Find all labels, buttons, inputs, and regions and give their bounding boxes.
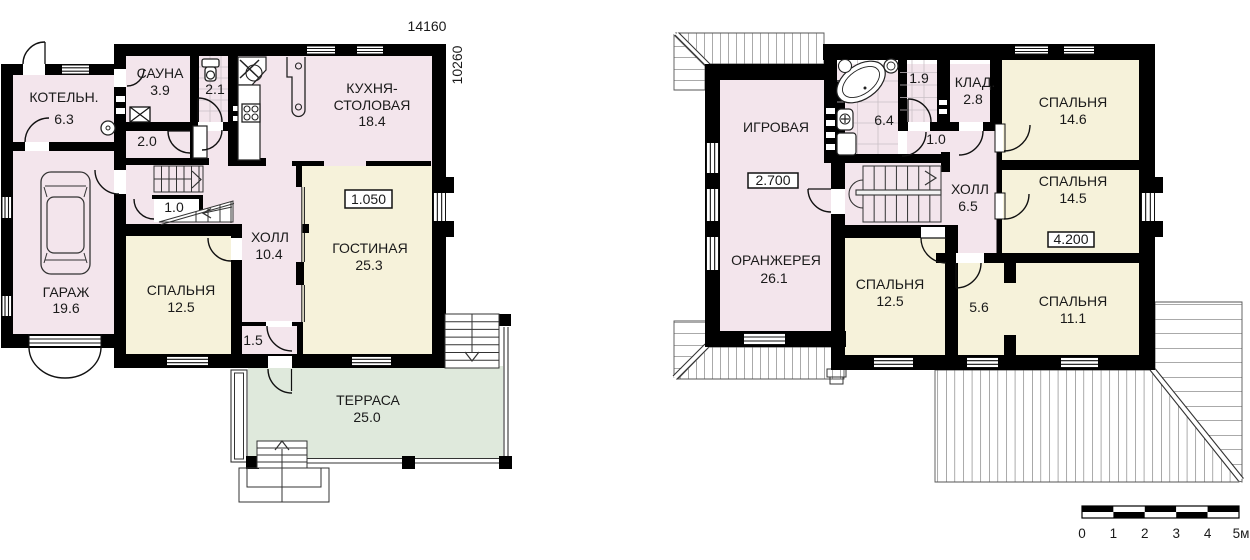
svg-text:4: 4: [1204, 526, 1212, 541]
svg-text:1: 1: [1110, 526, 1118, 541]
svg-text:6.3: 6.3: [54, 111, 74, 127]
svg-text:СПАЛЬНЯ: СПАЛЬНЯ: [856, 276, 924, 292]
svg-text:5.6: 5.6: [969, 299, 989, 315]
svg-text:ГАРАЖ: ГАРАЖ: [43, 284, 90, 300]
svg-text:5м: 5м: [1233, 526, 1250, 541]
svg-text:1.5: 1.5: [243, 332, 263, 348]
svg-text:2.1: 2.1: [205, 81, 225, 97]
svg-text:1.9: 1.9: [909, 70, 929, 86]
svg-text:25.3: 25.3: [355, 257, 382, 273]
svg-text:19.6: 19.6: [52, 300, 79, 316]
svg-text:26.1: 26.1: [760, 270, 787, 286]
svg-text:СПАЛЬНЯ: СПАЛЬНЯ: [147, 282, 215, 298]
svg-text:18.4: 18.4: [358, 113, 385, 129]
svg-text:ТЕРРАСА: ТЕРРАСА: [336, 392, 400, 408]
svg-text:КУХНЯ-: КУХНЯ-: [346, 80, 398, 96]
svg-text:25.0: 25.0: [353, 409, 380, 425]
svg-text:4.200: 4.200: [1053, 231, 1088, 247]
svg-text:ОРАНЖЕРЕЯ: ОРАНЖЕРЕЯ: [731, 252, 821, 268]
svg-text:ГОСТИНАЯ: ГОСТИНАЯ: [332, 240, 408, 256]
svg-text:11.1: 11.1: [1060, 310, 1086, 326]
svg-text:10.4: 10.4: [255, 246, 282, 262]
svg-text:1.050: 1.050: [351, 191, 386, 207]
svg-text:1.0: 1.0: [926, 131, 946, 147]
svg-text:12.5: 12.5: [876, 293, 903, 309]
svg-text:2: 2: [1141, 526, 1149, 541]
svg-text:КЛАД.: КЛАД.: [955, 74, 996, 90]
svg-text:14.5: 14.5: [1059, 190, 1086, 206]
svg-text:6.4: 6.4: [874, 112, 894, 128]
svg-text:2.8: 2.8: [963, 91, 983, 107]
svg-text:СПАЛЬНЯ: СПАЛЬНЯ: [1039, 293, 1107, 309]
svg-text:3: 3: [1172, 526, 1180, 541]
svg-text:6.5: 6.5: [958, 198, 978, 214]
svg-text:14.6: 14.6: [1059, 111, 1086, 127]
svg-text:ИГРОВАЯ: ИГРОВАЯ: [743, 119, 809, 135]
svg-text:ХОЛЛ: ХОЛЛ: [951, 181, 989, 197]
svg-text:2.0: 2.0: [137, 133, 157, 149]
svg-text:СТОЛОВАЯ: СТОЛОВАЯ: [334, 97, 411, 113]
svg-text:ХОЛЛ: ХОЛЛ: [251, 229, 289, 245]
svg-text:0: 0: [1078, 526, 1086, 541]
svg-text:3.9: 3.9: [150, 82, 170, 98]
svg-text:1.0: 1.0: [164, 199, 184, 215]
svg-text:САУНА: САУНА: [137, 65, 185, 81]
svg-text:10260: 10260: [449, 45, 465, 84]
svg-text:14160: 14160: [408, 18, 447, 34]
svg-text:СПАЛЬНЯ: СПАЛЬНЯ: [1039, 94, 1107, 110]
svg-text:КОТЕЛЬН.: КОТЕЛЬН.: [29, 89, 98, 105]
svg-text:СПАЛЬНЯ: СПАЛЬНЯ: [1039, 173, 1107, 189]
svg-text:2.700: 2.700: [755, 172, 790, 188]
svg-text:12.5: 12.5: [167, 299, 194, 315]
